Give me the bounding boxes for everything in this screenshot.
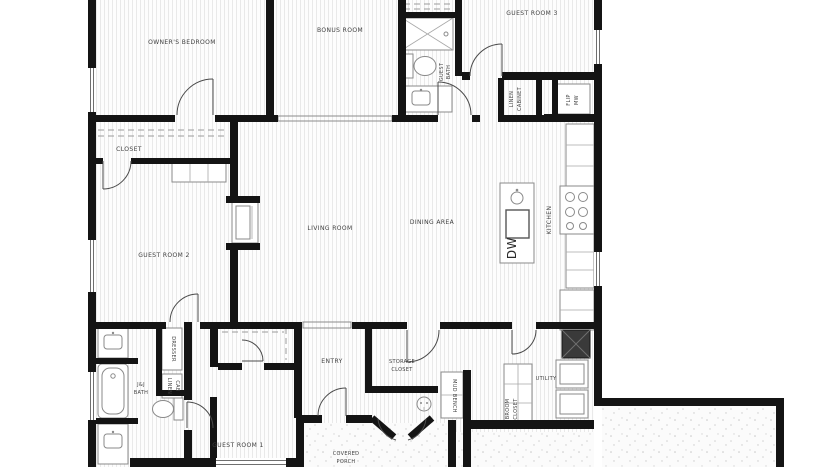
hall-built-in-cabinet <box>172 162 226 182</box>
entry-label: ENTRY <box>321 358 342 365</box>
mud-bench-label: MUD BENCH <box>451 379 457 413</box>
linen-cabinet-label-2: CABINET <box>517 86 523 111</box>
range <box>560 186 594 234</box>
jj-bath-label-1: J&J <box>136 382 145 388</box>
guest-bath-vanity <box>402 86 452 112</box>
fireplace-media-unit <box>232 202 258 243</box>
window-guest-room-1 <box>216 458 286 467</box>
floor-plan-drawing: OWNER'S BEDROOM BONUS ROOM GUEST ROOM 3 … <box>0 0 835 467</box>
jj-vanity-bottom <box>98 424 128 464</box>
storage-closet-label-2: CLOSET <box>391 367 413 373</box>
flip-mw-label-2: MW <box>574 95 580 105</box>
broom-closet-label-2: CLOSET <box>513 398 519 420</box>
flip-mw-label-1: FLIP <box>566 94 572 105</box>
jj-bath-label-2: BATH <box>134 390 148 396</box>
linen-cabinet-label-1: LINEN <box>509 91 515 107</box>
floor-patio <box>602 406 776 467</box>
dryer <box>556 390 588 418</box>
window-owners-bedroom <box>88 68 96 112</box>
flip-mw-cabinet <box>556 84 590 114</box>
water-heater <box>562 330 590 358</box>
kitchen-label: KITCHEN <box>546 206 553 235</box>
linen-cab-label-1: LINEN <box>166 378 172 394</box>
shower <box>402 18 453 50</box>
floors <box>96 0 776 467</box>
window-guest-room-3 <box>594 30 602 64</box>
dining-area-label: DINING AREA <box>410 219 455 226</box>
guest-bath-label-1: GUEST <box>439 62 445 81</box>
guest-room-3-label: GUEST ROOM 3 <box>506 10 558 17</box>
guest-room-2-label: GUEST ROOM 2 <box>138 252 190 259</box>
linen-cab-label-2: CAB <box>174 380 180 392</box>
window-kitchen <box>594 252 602 286</box>
covered-porch-label-2: PORCH <box>337 459 356 465</box>
guest-bath-label-2: BATH <box>446 65 452 79</box>
guest-room-1-label: GUEST ROOM 1 <box>212 442 264 449</box>
dishwasher-label: DW <box>505 237 519 259</box>
floor-exterior-walk <box>456 432 594 467</box>
window-jj-bath <box>88 372 96 420</box>
living-room-label: LIVING ROOM <box>307 225 352 232</box>
broom-closet-label-1: BROOM <box>505 399 511 420</box>
dresser-label: DRESSER <box>170 336 176 362</box>
guest-bath-toilet <box>404 54 436 78</box>
washer <box>556 360 588 388</box>
floor-plan: OWNER'S BEDROOM BONUS ROOM GUEST ROOM 3 … <box>0 0 835 467</box>
covered-porch-label-1: COVERED <box>333 451 360 457</box>
jj-vanity-top <box>98 328 128 358</box>
bathtub <box>98 364 128 418</box>
owners-bedroom-label: OWNER'S BEDROOM <box>148 39 216 46</box>
kitchen-counter-upper <box>566 124 594 186</box>
closet-label: CLOSET <box>116 146 142 153</box>
floor-covered-porch <box>304 423 448 467</box>
kitchen-counter-lower <box>566 234 594 288</box>
bonus-room-label: BONUS ROOM <box>317 27 363 34</box>
window-guest-room-2 <box>88 240 96 292</box>
storage-closet-label-1: STORAGE <box>389 359 415 365</box>
utility-label: UTILITY <box>536 376 557 382</box>
